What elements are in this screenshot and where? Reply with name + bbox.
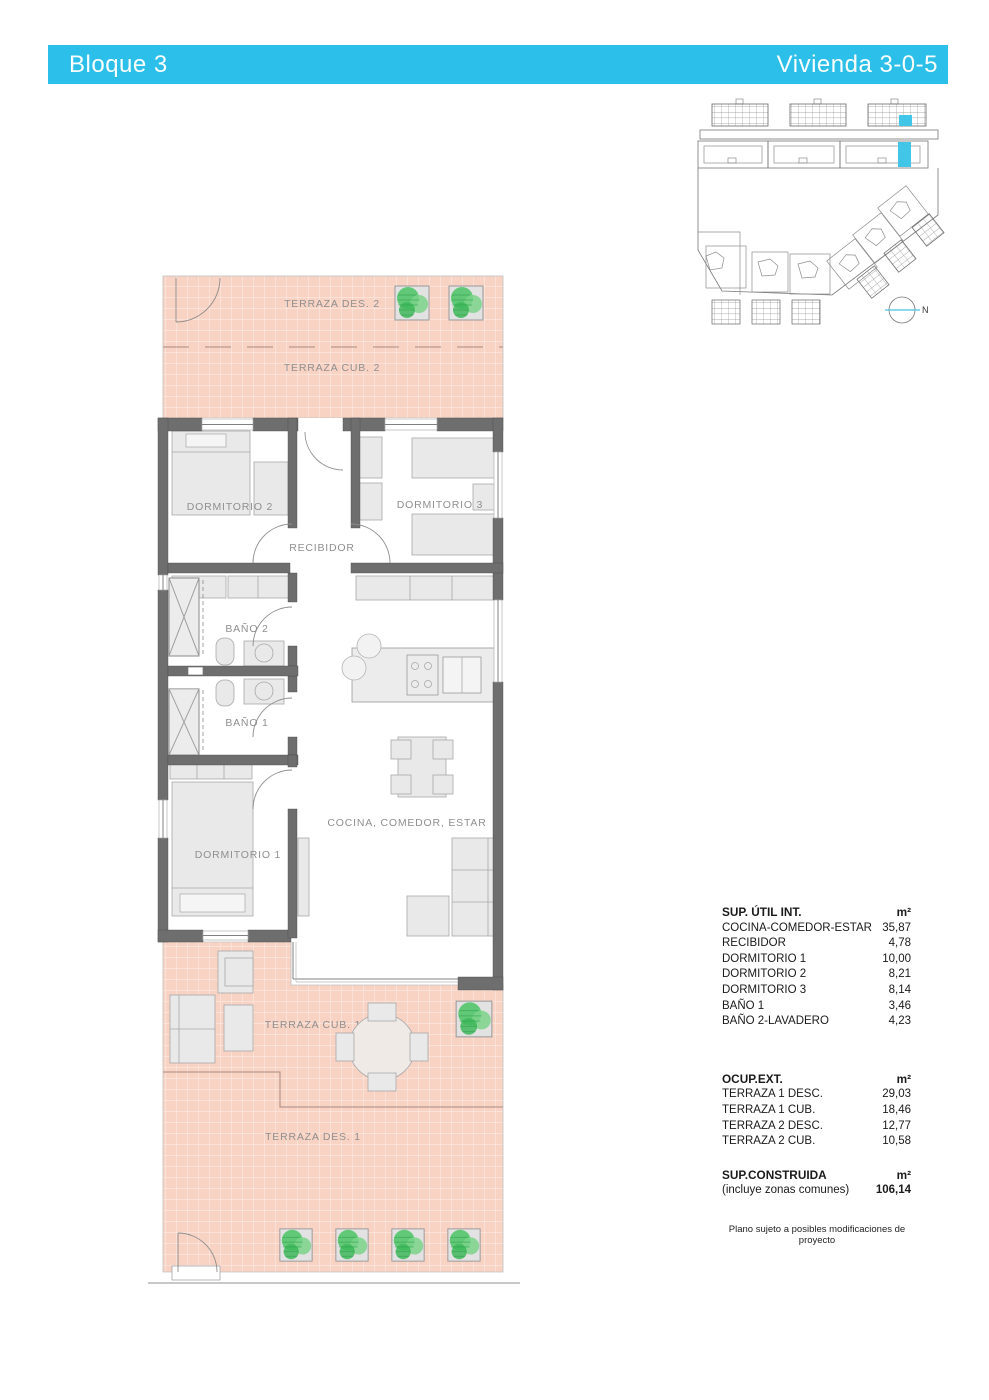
plant-icon (456, 1001, 492, 1037)
plant-icon (280, 1229, 312, 1261)
areas-table: SUP. ÚTIL INT.m² COCINA-COMEDOR-ESTAR35,… (722, 905, 911, 1199)
plant-icon (392, 1229, 424, 1261)
room-label-dormitorio-2: DORMITORIO 2 (187, 501, 273, 513)
plant-icon (448, 1229, 480, 1261)
room-label-bano-2: BAÑO 2 (225, 622, 268, 635)
room-label-terraza-des-1: TERRAZA DES. 1 (265, 1131, 361, 1143)
table-row: RECIBIDOR4,78 (722, 936, 911, 952)
terrace-1-area: TERRAZA CUB. 1 TERRAZA DES. 1 (163, 942, 503, 1280)
room-label-terraza-des-2: TERRAZA DES. 2 (284, 298, 380, 310)
section-title: SUP.CONSTRUIDA (722, 1168, 827, 1184)
table-row: COCINA-COMEDOR-ESTAR35,87 (722, 921, 911, 937)
room-label-bano-1: BAÑO 1 (225, 716, 268, 729)
table-section-built: SUP.CONSTRUIDAm² (incluye zonas comunes)… (722, 1168, 911, 1199)
north-label: N (922, 305, 929, 315)
parking-grids-top (712, 99, 926, 126)
unit-title: Vivienda 3-0-5 (777, 51, 938, 79)
plant-icon (449, 286, 483, 320)
room-label-recibidor: RECIBIDOR (289, 542, 355, 554)
table-row-total: (incluye zonas comunes)106,14 (722, 1183, 911, 1199)
unit-header: m² (897, 1072, 911, 1088)
disclaimer-note: Plano sujeto a posibles modificaciones d… (712, 1224, 922, 1246)
site-road (700, 130, 938, 139)
table-row: BAÑO 13,46 (722, 999, 911, 1015)
block-title: Bloque 3 (69, 51, 168, 79)
section-title: OCUP.EXT. (722, 1072, 783, 1088)
site-parcel (698, 168, 944, 298)
section-title: SUP. ÚTIL INT. (722, 905, 802, 921)
room-label-dormitorio-3: DORMITORIO 3 (397, 499, 483, 511)
table-row: BAÑO 2-LAVADERO4,23 (722, 1014, 911, 1030)
terrace-2-area: TERRAZA DES. 2 TERRAZA CUB. 2 (163, 276, 503, 418)
table-row: DORMITORIO 38,14 (722, 983, 911, 999)
table-row: TERRAZA 1 DESC.29,03 (722, 1087, 911, 1103)
table-row: TERRAZA 2 CUB.10,58 (722, 1134, 911, 1150)
parking-grids-bottom (712, 300, 820, 324)
floorplan-page: Bloque 3 Vivienda 3-0-5 (0, 0, 989, 1400)
table-row: TERRAZA 2 DESC.12,77 (722, 1119, 911, 1135)
room-label-terraza-cub-1: TERRAZA CUB. 1 (265, 1019, 361, 1031)
table-section-exterior: OCUP.EXT.m² TERRAZA 1 DESC.29,03 TERRAZA… (722, 1072, 911, 1150)
building-row (698, 141, 928, 168)
plant-icon (336, 1229, 368, 1261)
highlighted-parking-cell (899, 115, 912, 126)
site-plan: N (688, 92, 954, 340)
table-section-util: SUP. ÚTIL INT.m² COCINA-COMEDOR-ESTAR35,… (722, 905, 911, 1030)
north-arrow-icon: N (885, 297, 929, 323)
table-row: DORMITORIO 28,21 (722, 967, 911, 983)
room-label-dormitorio-1: DORMITORIO 1 (195, 849, 281, 861)
plant-icon (395, 286, 429, 320)
table-row: DORMITORIO 110,00 (722, 952, 911, 968)
room-label-terraza-cub-2: TERRAZA CUB. 2 (284, 362, 380, 374)
shower-icon (169, 689, 199, 755)
table-row: TERRAZA 1 CUB.18,46 (722, 1103, 911, 1119)
header-bar: Bloque 3 Vivienda 3-0-5 (48, 45, 948, 84)
floor-plan: TERRAZA DES. 2 TERRAZA CUB. 2 TERRAZA CU… (148, 262, 520, 1292)
unit-header: m² (897, 1168, 911, 1184)
unit-header: m² (897, 905, 911, 921)
shower-icon (169, 578, 199, 656)
room-label-cocina: COCINA, COMEDOR, ESTAR (327, 817, 486, 829)
highlighted-unit (898, 142, 911, 167)
